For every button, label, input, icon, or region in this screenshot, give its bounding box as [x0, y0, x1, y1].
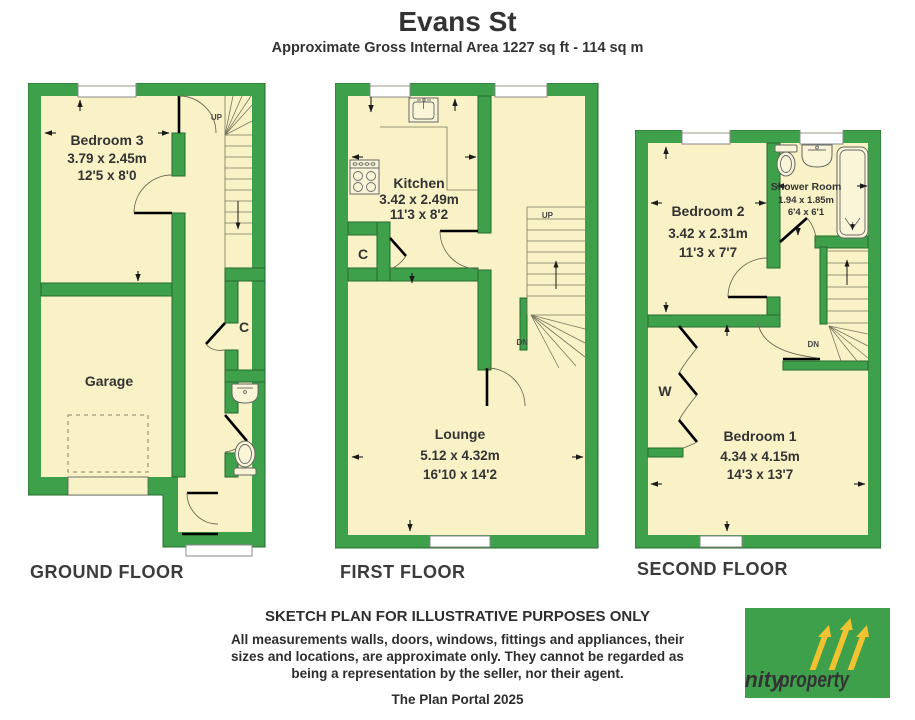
front-door-step — [186, 545, 252, 556]
page-title: Evans St — [0, 6, 915, 38]
floorplan-page: Evans St Approximate Gross Internal Area… — [0, 0, 915, 720]
kitchen-imperial: 11'3 x 8'2 — [390, 207, 448, 222]
ground-cupboard-label: C — [239, 319, 249, 335]
shower-toilet-icon — [775, 145, 797, 176]
bedroom2-name: Bedroom 2 — [671, 203, 744, 219]
bedroom3-imperial: 12'5 x 8'0 — [78, 168, 137, 183]
ground-floor-plan: UP — [28, 83, 268, 558]
shower-room-imperial: 6'4 x 6'1 — [788, 207, 825, 218]
lounge-name: Lounge — [435, 426, 486, 442]
kitchen-sink-icon — [409, 98, 438, 122]
ground-floor-label: GROUND FLOOR — [30, 562, 184, 583]
shower-sink-icon — [802, 145, 832, 167]
garage-door — [68, 477, 148, 495]
bedroom2-metric: 3.42 x 2.31m — [668, 226, 748, 241]
first-stairs-down-label: DN — [516, 338, 528, 347]
garage-name: Garage — [85, 373, 133, 389]
second-floor-label: SECOND FLOOR — [637, 559, 788, 580]
wc-sink-icon — [232, 384, 258, 403]
lounge-imperial: 16'10 x 14'2 — [423, 467, 497, 482]
trinity-property-logo-icon: trinity property — [745, 608, 890, 698]
kitchen-name: Kitchen — [393, 175, 444, 191]
bedroom1-imperial: 14'3 x 13'7 — [727, 467, 793, 482]
shower-room-name: Shower Room — [771, 181, 842, 193]
wc-toilet-icon — [234, 441, 256, 475]
lounge-metric: 5.12 x 4.32m — [420, 448, 500, 463]
first-floor-plan: UP DN — [335, 83, 600, 553]
bedroom3-metric: 3.79 x 2.45m — [67, 151, 147, 166]
shower-cubicle-icon — [837, 147, 868, 238]
second-floor-plan: DN — [635, 130, 881, 550]
wardrobe-label: W — [658, 383, 672, 399]
logo-brand-secondary: property — [778, 667, 850, 692]
page-subtitle: Approximate Gross Internal Area 1227 sq … — [0, 40, 915, 56]
bedroom2-imperial: 11'3 x 7'7 — [679, 245, 737, 260]
bedroom1-metric: 4.34 x 4.15m — [720, 449, 800, 464]
kitchen-stove-icon — [350, 160, 379, 194]
kitchen-metric: 3.42 x 2.49m — [379, 192, 459, 207]
first-cupboard-label: C — [358, 246, 368, 262]
shower-room-metric: 1.94 x 1.85m — [778, 195, 834, 206]
bedroom1-name: Bedroom 1 — [723, 428, 796, 444]
agency-logo: trinity property — [745, 608, 890, 698]
first-floor-label: FIRST FLOOR — [340, 562, 466, 583]
bedroom3-name: Bedroom 3 — [70, 132, 143, 148]
second-stairs-down-label: DN — [807, 340, 819, 349]
first-stairs-up-label: UP — [542, 211, 554, 220]
